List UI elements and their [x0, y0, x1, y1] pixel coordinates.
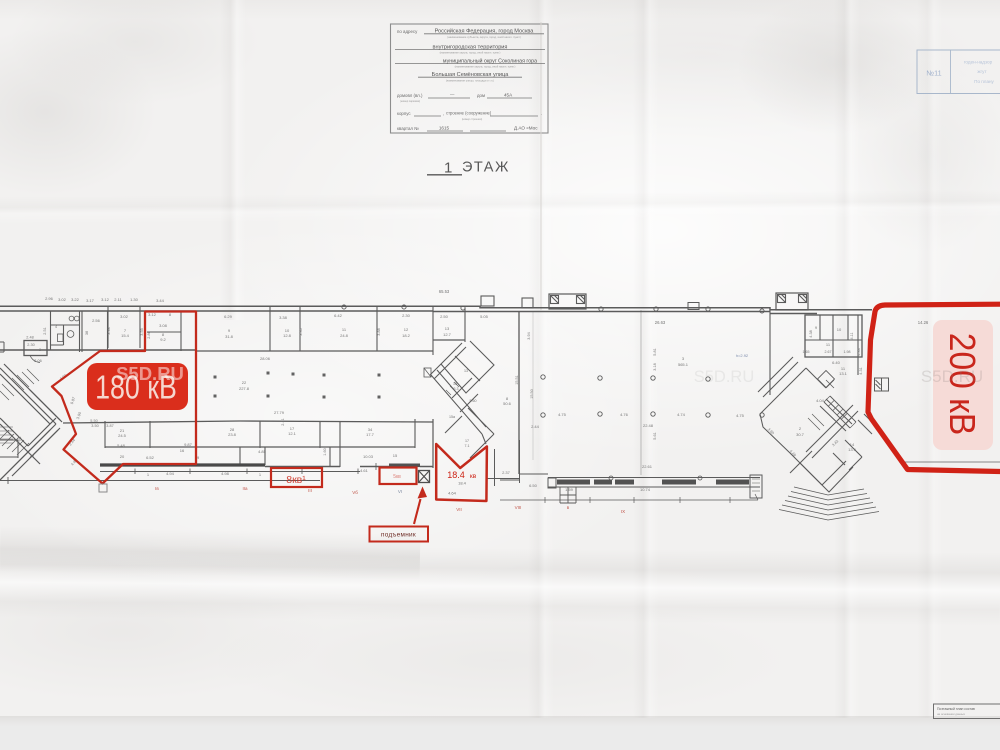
svg-text:565.1: 565.1 [678, 362, 689, 367]
svg-text:1: 1 [444, 160, 452, 177]
svg-text:1615: 1615 [439, 126, 450, 131]
svg-text:По плану: По плану [974, 79, 994, 84]
svg-text:1.30: 1.30 [130, 297, 139, 302]
svg-text:дом: дом [477, 93, 485, 98]
svg-text:2.06: 2.06 [34, 359, 41, 363]
svg-text:8кв¹: 8кв¹ [286, 474, 306, 486]
svg-text:5.3: 5.3 [454, 387, 459, 391]
svg-text:26.63: 26.63 [655, 320, 666, 325]
svg-text:2.56: 2.56 [92, 318, 101, 323]
svg-text:(наименование улицы, площади и: (наименование улицы, площади и т.п.) [446, 79, 494, 83]
svg-text:3.12: 3.12 [101, 297, 110, 302]
svg-text:4.04: 4.04 [816, 398, 825, 403]
svg-text:5.60: 5.60 [470, 399, 477, 403]
svg-text:227.8: 227.8 [239, 386, 250, 391]
svg-text:по адресу: по адресу [397, 29, 418, 34]
svg-text:3.30: 3.30 [299, 328, 303, 335]
svg-text:IX: IX [621, 509, 625, 514]
svg-text:5.50: 5.50 [90, 419, 97, 423]
svg-text:9: 9 [815, 325, 818, 330]
svg-text:15: 15 [393, 453, 398, 458]
svg-text:4.76: 4.76 [620, 412, 629, 417]
svg-text:6.42: 6.42 [334, 313, 343, 318]
svg-text:3.38: 3.38 [279, 315, 288, 320]
svg-text:8: 8 [169, 312, 172, 317]
svg-text:3.90: 3.90 [767, 427, 775, 435]
svg-text:1: 1 [147, 472, 150, 477]
svg-text:1.60: 1.60 [323, 448, 327, 455]
svg-text:3.12: 3.12 [148, 312, 157, 317]
svg-text:2.67: 2.67 [825, 350, 832, 354]
svg-text:2.30: 2.30 [402, 313, 411, 318]
svg-text:23.8: 23.8 [228, 432, 237, 437]
svg-text:1.65: 1.65 [803, 350, 810, 354]
svg-text:4.94: 4.94 [166, 471, 175, 476]
svg-text:4.11: 4.11 [850, 332, 854, 339]
svg-text:1.98: 1.98 [844, 350, 851, 354]
svg-text:2.30: 2.30 [27, 343, 34, 347]
svg-text:2.96: 2.96 [45, 296, 54, 301]
svg-text:—: — [450, 92, 455, 97]
svg-text:2.41: 2.41 [281, 418, 285, 425]
svg-text:31.8: 31.8 [225, 334, 234, 339]
svg-text:3.43: 3.43 [831, 439, 839, 447]
svg-text:50.6: 50.6 [503, 401, 512, 406]
svg-text:10.03: 10.03 [363, 454, 374, 459]
svg-text:Поэтажный план состав: Поэтажный план состав [937, 707, 975, 711]
svg-text:6.29: 6.29 [224, 314, 233, 319]
svg-text:4.98: 4.98 [221, 471, 230, 476]
svg-text:2.50: 2.50 [440, 314, 449, 319]
svg-text:3.02: 3.02 [120, 314, 129, 319]
svg-text:5кв: 5кв [393, 474, 401, 480]
svg-text:5.81: 5.81 [653, 348, 657, 355]
svg-text:18.4: 18.4 [447, 470, 465, 480]
svg-text:годен-надзор: годен-надзор [964, 60, 993, 65]
svg-text:9.2: 9.2 [160, 337, 166, 342]
svg-text:3.88: 3.88 [377, 328, 381, 335]
svg-text:12.8: 12.8 [283, 333, 292, 338]
svg-text:кв: кв [470, 473, 477, 480]
svg-text:11: 11 [342, 327, 347, 332]
svg-text:(наименование субъекта, округа: (наименование субъекта, округа, город, и… [447, 35, 521, 39]
svg-text:квартал №: квартал № [397, 126, 419, 131]
svg-text:20: 20 [30, 454, 34, 458]
svg-text:4.74: 4.74 [677, 412, 686, 417]
svg-text:2: 2 [799, 426, 802, 431]
svg-text:3.08: 3.08 [159, 323, 168, 328]
svg-text:1.59: 1.59 [565, 487, 574, 492]
svg-text:15.50: 15.50 [530, 389, 534, 399]
svg-text:2.11: 2.11 [114, 297, 122, 302]
svg-text:13: 13 [464, 369, 468, 373]
svg-text:1: 1 [259, 472, 262, 477]
svg-text:корпус: корпус [397, 111, 411, 116]
svg-text:6.50: 6.50 [529, 483, 538, 488]
svg-text:Vб: Vб [352, 490, 358, 495]
svg-text:13.1: 13.1 [839, 371, 848, 376]
svg-text:2.37: 2.37 [502, 470, 511, 475]
svg-text:6.40: 6.40 [832, 360, 841, 365]
svg-text:III: III [308, 488, 312, 493]
svg-text:S5D.RU: S5D.RU [921, 367, 983, 386]
svg-text:27.79: 27.79 [274, 410, 285, 415]
svg-text:12: 12 [404, 327, 409, 332]
svg-text:9: 9 [228, 328, 231, 333]
svg-text:15а: 15а [449, 415, 455, 419]
svg-text:3.27: 3.27 [15, 436, 23, 444]
svg-text:4.61: 4.61 [360, 468, 369, 473]
svg-text:65.53: 65.53 [439, 289, 450, 294]
svg-text:12.7: 12.7 [443, 332, 452, 337]
svg-text:3.44: 3.44 [156, 298, 165, 303]
svg-text:22.48: 22.48 [643, 423, 654, 428]
svg-text:20: 20 [120, 454, 125, 459]
svg-text:2.51: 2.51 [43, 327, 47, 334]
svg-text:5.48: 5.48 [117, 443, 126, 448]
svg-text:ЭТАЖ: ЭТАЖ [462, 160, 510, 176]
svg-text:28.06: 28.06 [260, 356, 271, 361]
svg-text:3.98: 3.98 [107, 327, 111, 334]
svg-text:3.18: 3.18 [653, 363, 657, 370]
svg-text:17.7: 17.7 [366, 432, 375, 437]
svg-text:Iв: Iв [155, 486, 159, 491]
svg-text:на основании данных: на основании данных [937, 712, 966, 716]
svg-text:(наименование округа, город, и: (наименование округа, город, иной насел.… [440, 51, 501, 55]
svg-text:4.64: 4.64 [448, 491, 457, 496]
svg-text:,: , [443, 111, 444, 116]
svg-text:подъемник: подъемник [381, 532, 416, 539]
svg-text:№11: №11 [926, 69, 941, 78]
svg-text:3.50: 3.50 [91, 424, 98, 428]
svg-text:3.55: 3.55 [140, 328, 144, 335]
svg-text:Д.АО «Мос: Д.АО «Мос [514, 126, 538, 131]
svg-text:в: в [567, 505, 570, 510]
svg-text:9.87: 9.87 [184, 442, 193, 447]
svg-text:(номер парковки): (номер парковки) [400, 100, 420, 103]
svg-text:14.26: 14.26 [918, 320, 929, 325]
svg-text:5.05: 5.05 [480, 314, 489, 319]
svg-text:12.1: 12.1 [288, 431, 297, 436]
svg-text:домовл (вл.): домовл (вл.) [397, 93, 423, 98]
svg-text:4.75: 4.75 [558, 412, 567, 417]
svg-text:16: 16 [180, 448, 185, 453]
svg-text:5.61: 5.61 [653, 432, 657, 439]
svg-text:3: 3 [39, 348, 41, 352]
svg-text:10.74: 10.74 [640, 487, 651, 492]
svg-text:3.17: 3.17 [86, 298, 95, 303]
svg-text:11: 11 [826, 342, 831, 347]
svg-text:4.31: 4.31 [859, 367, 863, 374]
svg-text:S5D.RU: S5D.RU [694, 368, 755, 386]
svg-text:22: 22 [242, 380, 247, 385]
svg-text:9.87: 9.87 [70, 397, 76, 405]
svg-text:3.87: 3.87 [106, 424, 113, 428]
svg-text:3.94: 3.94 [527, 332, 531, 339]
svg-text:13: 13 [445, 326, 450, 331]
svg-text:3: 3 [682, 356, 685, 361]
svg-text:строение (сооружение): строение (сооружение) [446, 111, 492, 116]
svg-text:30.7: 30.7 [796, 432, 805, 437]
svg-text:(номер строения): (номер строения) [462, 118, 482, 121]
svg-text:18.4: 18.4 [458, 481, 467, 486]
svg-text:24.8: 24.8 [340, 333, 349, 338]
svg-text:15: 15 [453, 382, 457, 386]
svg-text:15.51: 15.51 [515, 375, 519, 385]
svg-text:3.02: 3.02 [58, 297, 67, 302]
svg-text:.: . [541, 111, 542, 116]
svg-text:h=2.92: h=2.92 [736, 353, 749, 358]
svg-text:4.75: 4.75 [736, 413, 745, 418]
svg-text:2.48: 2.48 [26, 336, 33, 340]
svg-text:2.86: 2.86 [147, 331, 151, 338]
svg-text:3б: 3б [85, 330, 89, 335]
svg-text:13.9: 13.9 [848, 447, 857, 452]
svg-text:VI: VI [398, 489, 402, 494]
svg-text:22.61: 22.61 [642, 464, 653, 469]
svg-text:6.52: 6.52 [146, 455, 155, 460]
svg-text:45А: 45А [504, 93, 513, 98]
svg-text:3.90: 3.90 [76, 412, 82, 420]
svg-text:4.33: 4.33 [857, 348, 861, 355]
svg-text:IIа: IIа [242, 486, 248, 491]
svg-text:15.4: 15.4 [121, 333, 130, 338]
svg-text:3.22: 3.22 [71, 297, 80, 302]
svg-text:(наименование округа, город, и: (наименование округа, город, иной насел.… [455, 65, 516, 69]
svg-text:24.5: 24.5 [118, 433, 127, 438]
svg-text:S5D.RU: S5D.RU [116, 363, 184, 384]
svg-text:18.2: 18.2 [402, 333, 411, 338]
svg-text:VIII: VIII [515, 505, 522, 510]
svg-text:4.38: 4.38 [809, 330, 813, 337]
svg-text:10: 10 [837, 327, 842, 332]
svg-text:2.44: 2.44 [531, 424, 540, 429]
svg-text:7.1: 7.1 [465, 444, 470, 448]
svg-text:4.85: 4.85 [258, 449, 267, 454]
svg-text:4: 4 [55, 325, 57, 329]
svg-text:4.49: 4.49 [789, 449, 797, 457]
svg-text:жгут: жгут [977, 69, 987, 74]
svg-text:17: 17 [465, 439, 469, 443]
svg-text:VII: VII [456, 507, 462, 512]
